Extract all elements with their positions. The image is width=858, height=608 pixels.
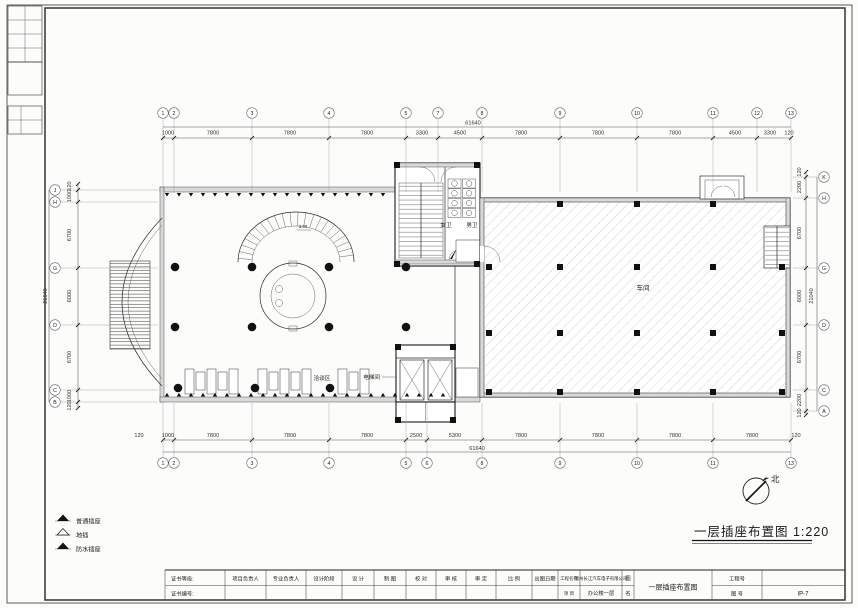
north-arrow: 北	[743, 474, 780, 504]
socket-normal-icon	[57, 515, 69, 522]
stair-tread	[310, 214, 314, 227]
grid-bubble-label: 9	[559, 461, 562, 467]
desk	[302, 369, 311, 394]
wc-fixture	[452, 191, 458, 197]
dimension-text: 120	[67, 401, 73, 410]
grid-bubble-label: 10	[634, 111, 640, 117]
stair-tread	[238, 259, 252, 260]
grid-bubble-label: 8	[481, 461, 484, 467]
column-square	[779, 330, 785, 336]
column-round	[326, 384, 335, 393]
column-round	[402, 323, 411, 332]
desk	[229, 369, 238, 394]
tb-col-8: 比 例	[508, 575, 520, 583]
grid-bubble-label: C	[822, 388, 826, 394]
dimension-text: 1000	[162, 433, 174, 439]
desk	[196, 372, 205, 390]
negotiation-area-label: 洽谈区	[314, 374, 331, 382]
dimension-text: 7800	[284, 131, 296, 137]
tb-col-6: 审 核	[445, 575, 458, 583]
dimension-text: 7800	[592, 131, 604, 137]
curved-stair: 3.30	[238, 212, 354, 262]
column-square	[395, 417, 401, 423]
north-label: 北	[771, 474, 780, 484]
dimension-text: 7800	[361, 131, 373, 137]
grid-bubble-label: 12	[754, 111, 760, 117]
project-name-line1: 温州长江汽车电子有限公司	[575, 575, 628, 582]
stair-tread	[340, 255, 354, 257]
legend-label-normal: 普通插座	[76, 518, 101, 526]
socket-symbol	[165, 193, 169, 197]
overall-dimension: 61640	[465, 121, 481, 127]
grid-bubble-label: 1	[162, 111, 165, 117]
desk	[360, 369, 369, 394]
column-square	[557, 201, 563, 207]
grid-bubble-label: 3	[251, 461, 254, 467]
dimension-text: 120	[67, 181, 73, 190]
grid-bubble-label: 5	[405, 461, 408, 467]
dimension-text: 3300	[416, 131, 428, 137]
tb-col-0: 项目负责人	[232, 575, 259, 583]
grid-bubble-label: 8	[481, 111, 484, 117]
wc-fixture	[452, 200, 458, 206]
socket-symbol	[297, 393, 301, 397]
grid-bubble-label: 5	[405, 111, 408, 117]
column-round	[251, 384, 260, 393]
dimension-text: 7800	[361, 433, 373, 439]
grid-bubble-label: 10	[634, 461, 640, 467]
stair-elevation-label: 3.30	[299, 224, 308, 229]
dimension-text: 7800	[207, 433, 219, 439]
column-round	[171, 323, 180, 332]
stair-tread	[274, 216, 279, 229]
dimension-text: 2200	[797, 394, 803, 406]
socket-symbol	[285, 193, 289, 197]
curved-facade	[110, 218, 162, 386]
tb-drawing-name: 一层插座布置图	[649, 583, 698, 592]
stair-tread	[290, 212, 291, 226]
socket-symbol	[213, 193, 217, 197]
drawing-title: 一层插座布置图 1:220	[692, 524, 829, 544]
elevator-core	[396, 345, 455, 422]
desk	[338, 369, 347, 394]
column-square	[394, 162, 400, 168]
dimension-text: 120	[134, 433, 143, 439]
socket-symbol	[273, 393, 277, 397]
socket-symbol	[189, 193, 193, 197]
dimension-text: 2200	[797, 181, 803, 193]
dimension-text: 120	[797, 408, 803, 417]
column-square	[634, 389, 640, 395]
grid-bubble-label: 1	[162, 461, 165, 467]
socket-symbol	[273, 193, 277, 197]
grid-bubble-label: A	[822, 409, 826, 415]
grid-bubble-label: H	[53, 200, 57, 206]
column-square	[710, 264, 716, 270]
dimension-text: 1000	[162, 131, 174, 137]
tb-col-4: 制 图	[384, 575, 396, 583]
dimension-text: 7800	[284, 433, 296, 439]
column-round	[402, 263, 411, 272]
workshop-label: 车间	[637, 283, 650, 292]
column-square	[710, 201, 716, 207]
tb-col-5: 校 对	[415, 575, 428, 583]
column-square	[486, 389, 492, 395]
stair-tread	[254, 227, 264, 237]
workshop	[480, 198, 790, 397]
grid-bubble-label: J	[54, 188, 57, 194]
grid-bubble-label: 13	[788, 111, 794, 117]
grid-bubble-label: 3	[251, 111, 254, 117]
dimension-text: 6700	[67, 229, 73, 241]
dimension-text: 7800	[746, 433, 758, 439]
grid-bubble-label: 2	[173, 111, 176, 117]
desk	[280, 369, 289, 394]
socket-symbol	[225, 193, 229, 197]
desk	[207, 369, 216, 394]
legend: 普通插座 地插 防水插座	[55, 515, 101, 554]
stair-tread	[239, 252, 253, 255]
wc-fixture	[466, 210, 472, 216]
cert-grade-label: 证书等级:	[171, 575, 194, 583]
tb-col-2: 设计阶段	[313, 575, 335, 583]
socket-symbol	[261, 193, 265, 197]
stair-tread	[245, 239, 257, 246]
dimension-text: 7800	[515, 433, 527, 439]
column-round	[174, 384, 183, 393]
building-plan: 3.30 女卫 男卫 车间 洽谈区 电梯间	[110, 162, 790, 423]
column-square	[450, 417, 456, 423]
dimension-text: 6000	[67, 290, 73, 302]
tb-col-7: 审 定	[475, 575, 488, 583]
revision-table	[8, 6, 42, 134]
socket-symbol	[225, 393, 229, 397]
column-round	[248, 323, 257, 332]
socket-symbol	[249, 193, 253, 197]
workshop-floor-hatch	[484, 202, 786, 393]
desk	[349, 372, 358, 390]
grid-bubble-label: C	[53, 388, 57, 394]
legend-label-floor: 地插	[76, 532, 88, 540]
stair-tread	[260, 223, 269, 234]
grid-bubble-label: H	[822, 196, 826, 202]
grid-bubble-label: D	[822, 323, 826, 329]
grid-bubble-label: K	[822, 175, 826, 181]
drawing-title-text: 一层插座布置图 1:220	[694, 524, 829, 539]
dimension-text: 1000	[67, 390, 73, 402]
legend-label-waterproof: 防水插座	[76, 546, 101, 554]
east-stair	[764, 226, 790, 268]
column-square	[634, 264, 640, 270]
desk	[269, 372, 278, 390]
column-square	[557, 389, 563, 395]
grid-bubble-label: B	[53, 400, 57, 406]
column-square	[394, 261, 400, 267]
column-square	[474, 261, 480, 267]
socket-waterproof-icon	[57, 543, 69, 550]
socket-symbol	[201, 393, 205, 397]
wc-fixture	[466, 181, 472, 187]
socket-symbol	[237, 193, 241, 197]
grid-bubble-label: G	[53, 266, 57, 272]
overall-dimension: 21040	[809, 288, 815, 304]
column-square	[395, 344, 401, 350]
socket-symbol	[165, 393, 169, 397]
column-square	[557, 264, 563, 270]
drawing-sheet: 3.30 女卫 男卫 车间 洽谈区 电梯间 123457891011121310…	[0, 0, 858, 608]
dimension-chain-right: KHGDCA1202200670060006700220012021040	[793, 167, 829, 417]
showroom-top-wall	[160, 187, 397, 192]
dimension-text: 6000	[797, 290, 803, 302]
cert-no-label: 证书编号:	[171, 590, 194, 598]
stair-tread	[267, 219, 274, 231]
grid-bubble-label: 4	[328, 111, 331, 117]
grid-bubble-label: 4	[328, 461, 331, 467]
dimension-text: 1000	[67, 190, 73, 202]
socket-symbol	[345, 193, 349, 197]
column-square	[486, 264, 492, 270]
grid-bubble-label: 9	[559, 111, 562, 117]
socket-symbol	[381, 193, 385, 197]
dimension-text: 2500	[410, 433, 422, 439]
socket-symbol	[309, 193, 313, 197]
column-square	[450, 344, 456, 350]
floor-plan-svg: 3.30 女卫 男卫 车间 洽谈区 电梯间 123457891011121310…	[0, 0, 858, 608]
socket-symbol	[249, 393, 253, 397]
grid-bubble-label: 11	[710, 111, 715, 117]
column-round	[248, 263, 257, 272]
stair-tread	[282, 213, 285, 227]
stair-tread	[336, 242, 349, 248]
project-label-bottom: 项 目	[564, 591, 574, 597]
socket-symbol	[177, 193, 181, 197]
socket-symbol	[297, 193, 301, 197]
socket-symbol	[321, 193, 325, 197]
tb-col-9: 出图日期	[534, 575, 555, 583]
overall-dimension: 21640	[43, 288, 49, 304]
socket-symbol	[369, 193, 373, 197]
dimension-text: 4500	[729, 131, 741, 137]
drawing-label-top: 图	[625, 574, 630, 582]
dimension-text: 4500	[454, 131, 466, 137]
stair-tread	[249, 233, 260, 241]
column-round	[325, 323, 334, 332]
dimension-text: 6700	[797, 227, 803, 239]
grid-bubble-label: G	[822, 266, 826, 272]
dimension-text: 7800	[207, 131, 219, 137]
dimension-text: 7800	[669, 131, 681, 137]
wc-fixture	[452, 181, 458, 187]
column-square	[634, 201, 640, 207]
sheet-no-value: IP-7	[797, 592, 809, 598]
socket-symbol	[201, 193, 205, 197]
stair-tread	[330, 230, 341, 239]
grid-bubble-label: 13	[788, 461, 794, 467]
socket-symbol	[177, 393, 181, 397]
wc-fixture	[466, 200, 472, 206]
column-square	[710, 330, 716, 336]
overall-dimension: 61640	[469, 446, 485, 452]
column-square	[779, 264, 785, 270]
desk	[291, 372, 300, 390]
job-no-label: 工程号	[729, 575, 745, 583]
dimension-text: 5300	[449, 433, 461, 439]
column-square	[557, 330, 563, 336]
dimension-chain-bottom: 1234568910111312010007800780078002500530…	[134, 403, 800, 468]
stair-tread	[338, 248, 351, 252]
sales-desks	[185, 369, 369, 394]
stair-tread	[241, 245, 254, 250]
sheet-no-label: 图 号	[731, 590, 743, 598]
column-round	[171, 263, 180, 272]
dimension-text: 120	[797, 167, 803, 176]
dimension-text: 3300	[764, 131, 776, 137]
title-block: 证书等级: 证书编号: 项目负责人 专业负责人 设计阶段 设 计 制 图 校 对…	[165, 570, 845, 600]
column-round	[325, 263, 334, 272]
column-square	[474, 162, 480, 168]
socket-symbol	[369, 393, 373, 397]
column-square	[779, 389, 785, 395]
dimension-text: 120	[784, 131, 793, 137]
elevator-label: 电梯间	[363, 373, 380, 381]
dimension-text: 6700	[797, 351, 803, 363]
desk	[185, 369, 194, 394]
stair-tread	[325, 225, 334, 235]
stair-tread	[315, 217, 321, 230]
drawing-label-bottom: 名	[625, 589, 630, 597]
wc-fixture	[452, 210, 458, 216]
grid-bubble-label: 6	[426, 461, 429, 467]
reception-desk	[260, 261, 326, 331]
dimension-text: 6700	[67, 351, 73, 363]
column-square	[710, 389, 716, 395]
stair-tread	[333, 236, 345, 243]
desk	[258, 369, 267, 394]
socket-symbol	[333, 393, 337, 397]
column-square	[486, 330, 492, 336]
utility-room	[456, 368, 478, 397]
entrance-porch	[700, 176, 744, 199]
facade-louver	[110, 261, 150, 349]
grid-bubble-label: 7	[437, 111, 440, 117]
small-room	[456, 240, 480, 262]
socket-floor-icon	[57, 529, 69, 536]
wc-fixture	[466, 191, 472, 197]
dimension-text: 120	[791, 433, 800, 439]
grid-bubble-label: D	[53, 323, 57, 329]
desk	[218, 372, 227, 390]
project-name-line2: 办公楼一层	[588, 589, 615, 597]
womens-wc-label: 女卫	[440, 221, 452, 229]
grid-bubble-label: 11	[710, 461, 715, 467]
socket-symbol	[321, 393, 325, 397]
tb-col-1: 专业负责人	[273, 575, 300, 583]
tb-col-3: 设 计	[352, 575, 365, 583]
stair-tread	[321, 221, 329, 233]
dimension-text: 7800	[515, 131, 527, 137]
dimension-text: 7800	[669, 433, 681, 439]
socket-symbol	[381, 393, 385, 397]
socket-symbol	[333, 193, 337, 197]
mens-wc-label: 男卫	[466, 222, 478, 229]
column-square	[634, 330, 640, 336]
dimension-text: 7800	[592, 433, 604, 439]
socket-symbol	[357, 193, 361, 197]
grid-bubble-label: 2	[173, 461, 176, 467]
